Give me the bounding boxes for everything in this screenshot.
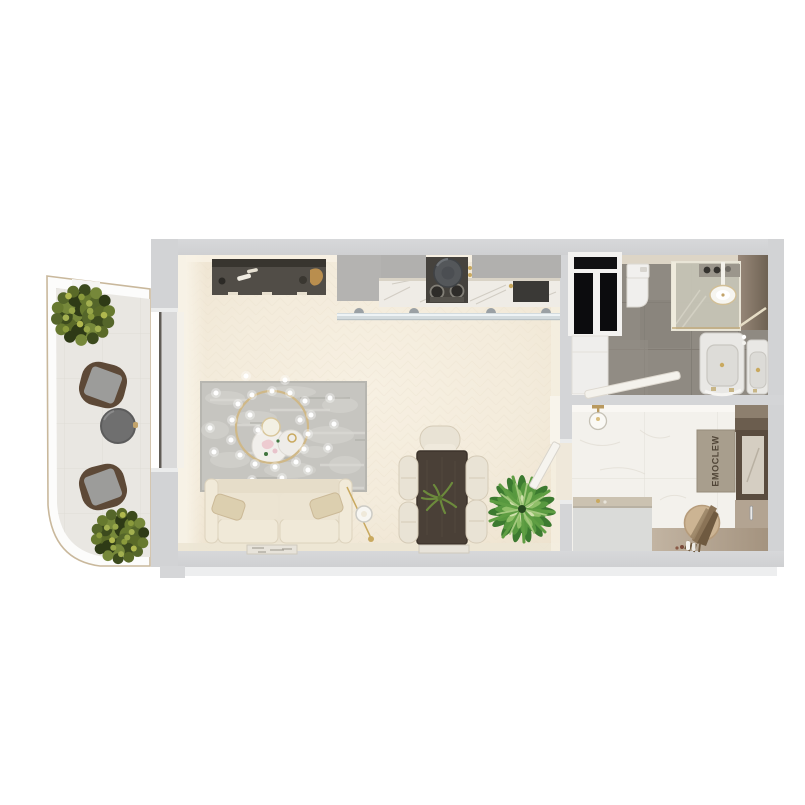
svg-text:EMOCLEW: EMOCLEW [710,435,720,486]
